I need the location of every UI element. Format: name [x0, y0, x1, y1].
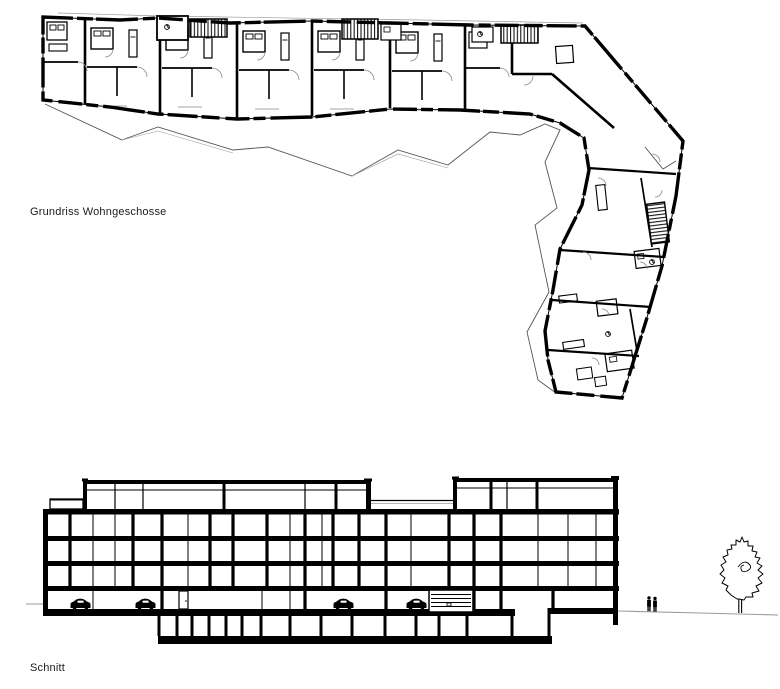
car-icon	[136, 599, 156, 610]
garage-entry-door	[179, 591, 188, 609]
drawing-canvas	[0, 0, 780, 689]
section-right-wall	[613, 478, 618, 625]
section-left-wall	[43, 509, 48, 616]
stair-core-corner	[472, 25, 538, 43]
garage-level	[71, 590, 554, 612]
ground-line-right	[618, 611, 778, 615]
architectural-sheet: Grundriss Wohngeschosse Schnitt	[0, 0, 780, 689]
terrace-inner-line	[352, 154, 448, 176]
car-icon	[334, 599, 354, 610]
tree-icon	[720, 537, 763, 613]
garage-sectional-door	[429, 590, 473, 612]
plan-label: Grundriss Wohngeschosse	[30, 206, 166, 218]
balcony-outline	[45, 104, 560, 393]
stair-hatch	[501, 25, 538, 43]
person-icon	[647, 596, 651, 611]
section-label: Schnitt	[30, 662, 65, 674]
attic-right	[452, 476, 619, 511]
person-icon	[653, 597, 657, 612]
floor-slabs	[43, 509, 619, 644]
floor-columns	[70, 514, 596, 586]
attic-left	[82, 479, 372, 512]
section-drawing	[26, 476, 778, 644]
car-icon	[71, 599, 91, 610]
car-icon	[407, 599, 427, 610]
